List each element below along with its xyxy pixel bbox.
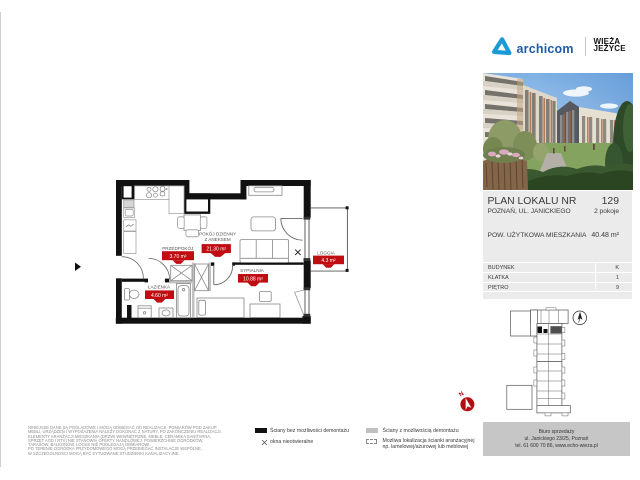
svg-text:3.70 m²: 3.70 m² (170, 254, 187, 260)
svg-text:POKÓJ DZIENNY: POKÓJ DZIENNY (199, 231, 236, 237)
svg-text:LOGGIA: LOGGIA (317, 251, 336, 256)
svg-text:SYPIALNIA: SYPIALNIA (240, 268, 265, 273)
svg-text:4.3 m²: 4.3 m² (321, 258, 336, 264)
svg-text:4.60 m²: 4.60 m² (151, 293, 168, 299)
svg-text:ŁAZIENKA: ŁAZIENKA (148, 285, 171, 290)
svg-text:10.88 m²: 10.88 m² (243, 276, 263, 282)
svg-text:21.30 m²: 21.30 m² (206, 247, 226, 253)
svg-text:Z ANEKSEM: Z ANEKSEM (204, 237, 230, 242)
svg-text:N: N (458, 391, 465, 398)
svg-text:PRZEDPOKÓJ: PRZEDPOKÓJ (162, 245, 193, 251)
